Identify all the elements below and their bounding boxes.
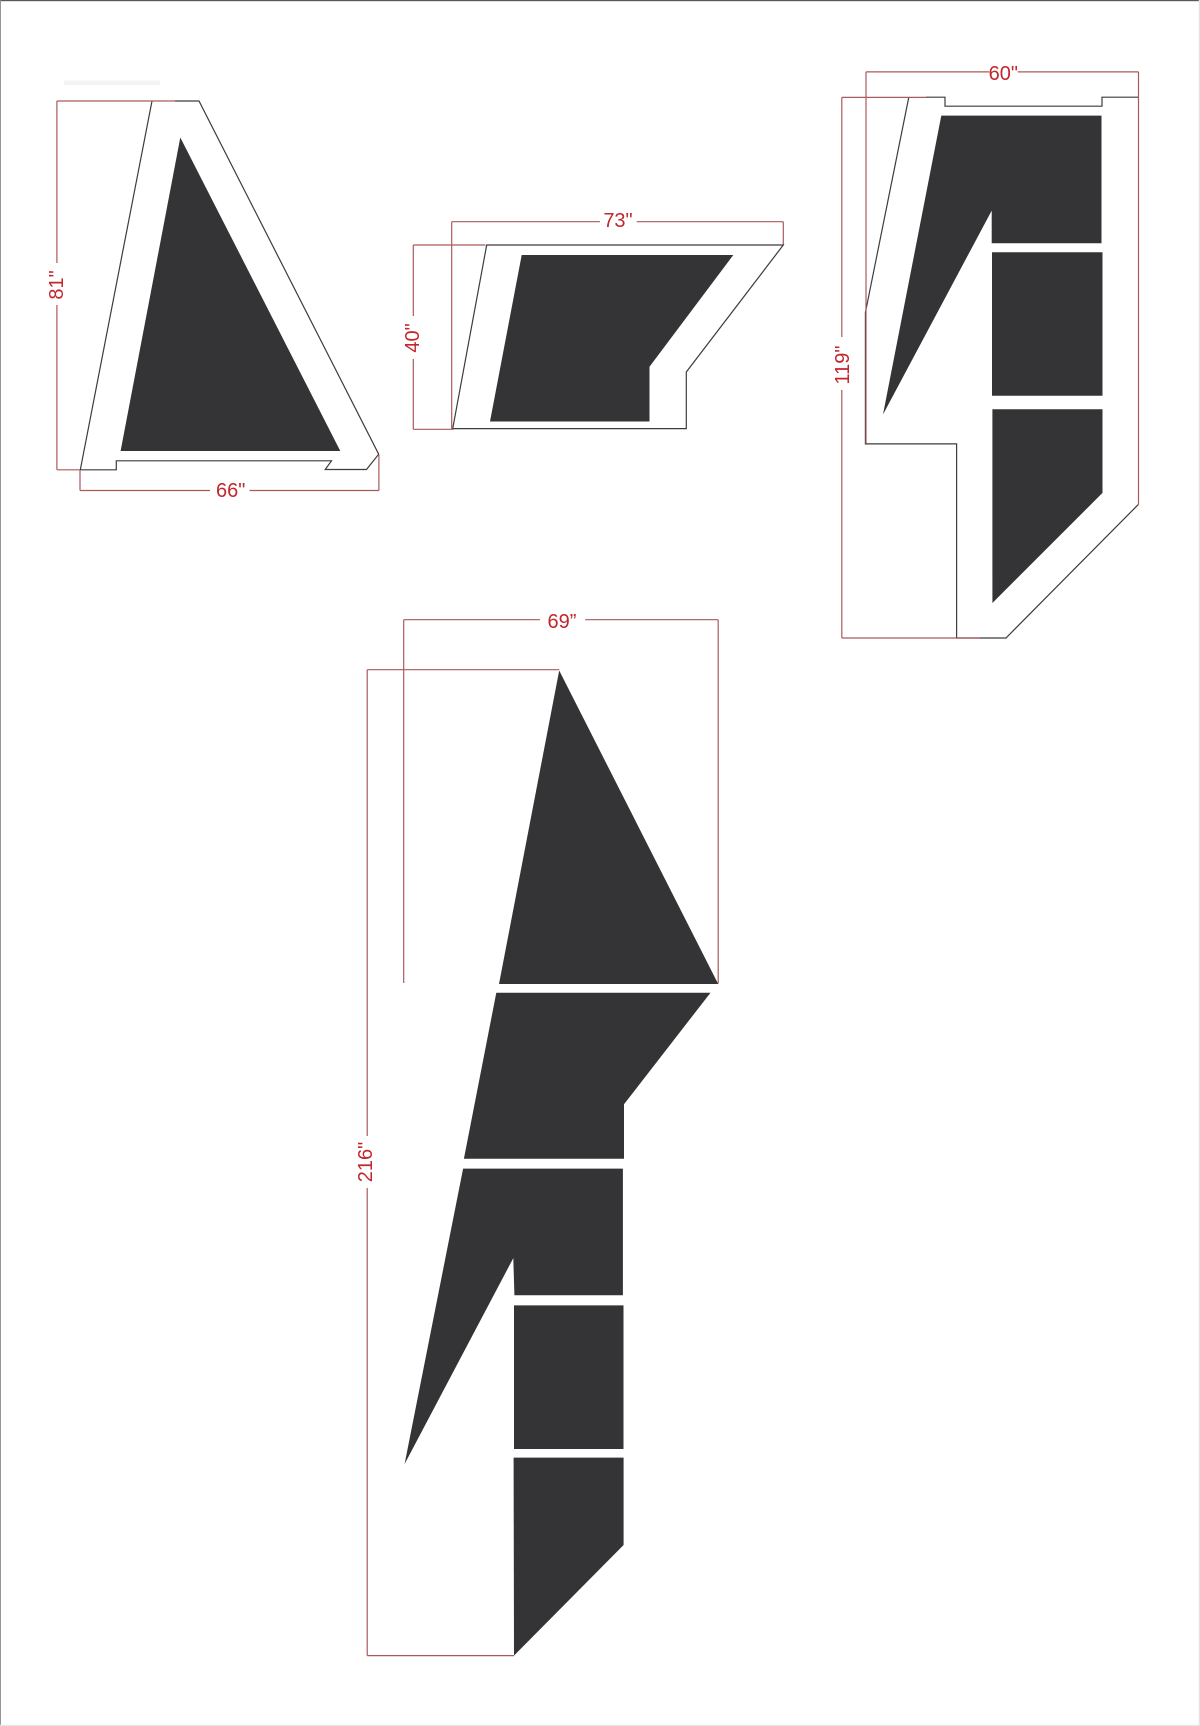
svg-text:73": 73" [603, 210, 632, 232]
svg-text:119": 119" [832, 346, 854, 385]
svg-text:69”: 69” [548, 611, 577, 633]
svg-text:66": 66" [216, 480, 245, 502]
svg-text:81": 81" [46, 270, 68, 299]
svg-text:216": 216" [355, 1142, 377, 1182]
svg-text:40": 40" [402, 323, 424, 352]
svg-text:60": 60" [989, 63, 1018, 85]
